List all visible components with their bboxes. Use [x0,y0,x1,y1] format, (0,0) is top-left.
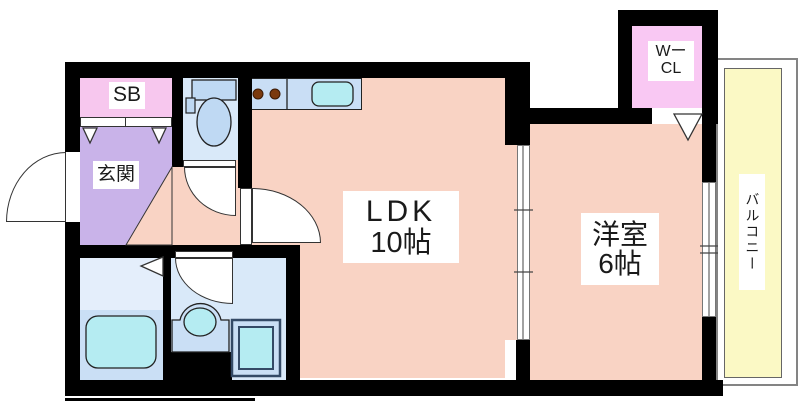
bathroom-lower [80,310,163,380]
balcony-label: バルコニー [739,174,765,290]
wall-bottom [65,380,723,396]
entrance-label-text: 玄関 [97,165,135,185]
ldk-room-label: LDK 10帖 [343,191,459,263]
balcony-window [702,182,716,317]
hall-floor-strip [172,167,183,245]
wall-east-upper [702,124,716,182]
washroom-door-leaf [175,251,233,258]
shoe-box-label-text: SB [113,84,141,106]
toilet-room [183,78,238,160]
wall-left-upper [65,62,80,152]
wall-ldk-east-lower [516,340,530,380]
wcl-label-line2: CL [661,61,681,78]
wall-washroom-notch [171,352,232,380]
entrance-door-opening [65,152,80,222]
western-room-label-name: 洋室 [592,220,648,249]
western-room-label-size: 6帖 [598,249,642,278]
wall-ldk-east-upper [505,62,530,145]
entrance-label: 玄関 [93,161,139,189]
ldk-label-name: LDK [366,196,436,228]
floor-plan: LDK 10帖 洋室 6帖 玄関 SB Wー CL バルコニー [0,0,800,402]
wall-toilet-left [172,62,183,167]
wall-top [65,62,530,78]
balcony-label-text: バルコニー [745,192,760,272]
wall-bath-divider [163,258,171,380]
wall-washroom-right [286,258,300,380]
shoe-box-label: SB [109,82,145,109]
wcl-label-line1: Wー [655,44,686,61]
wall-east-lower [702,317,716,380]
wall-western-room-top [528,108,652,124]
wcl-label: Wー CL [648,41,694,81]
ldk-sliding-door [517,145,530,340]
wcl-door-opening [652,108,702,124]
ldk-floor-east-strip [505,145,517,340]
ldk-door-jamb [240,188,252,245]
wall-wcl-right [702,10,718,124]
ldk-label-size: 10帖 [370,228,431,258]
shoe-box-door-band-divider [125,117,126,127]
kitchen-counter [248,78,362,110]
wall-bottom-shadow [65,398,255,401]
toilet-door-leaf [183,160,236,167]
entrance-door-arc [6,152,66,222]
wall-toilet-right [238,62,252,188]
western-room-label: 洋室 6帖 [581,213,659,285]
bathroom-upper [80,258,163,310]
shoe-box-door-band [80,117,172,127]
